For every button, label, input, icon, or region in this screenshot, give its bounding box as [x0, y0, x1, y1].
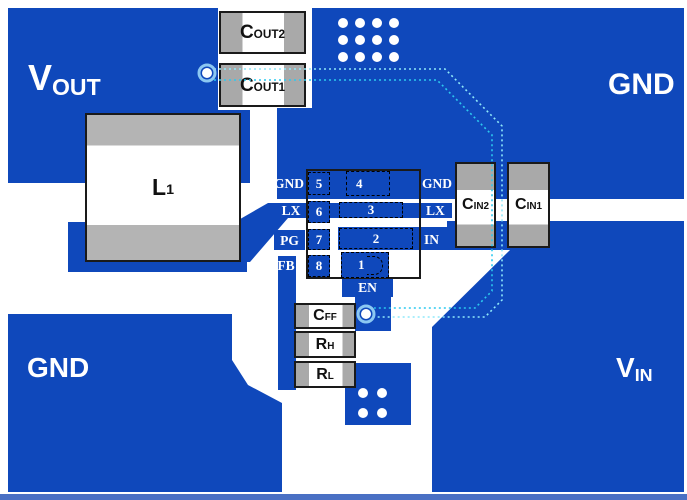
via-and-trace-overlay	[0, 0, 687, 500]
via-grid-top	[338, 18, 399, 62]
pcb-board: COUT2 COUT1 L1 CIN2 CIN1 CFF RH RL 5 4 6…	[0, 0, 687, 500]
via-cff	[358, 306, 374, 322]
via-grid-bottom	[358, 388, 387, 418]
sense-trace-outer	[214, 69, 502, 317]
via-cout1	[199, 65, 215, 81]
sense-trace-inner	[214, 80, 492, 308]
